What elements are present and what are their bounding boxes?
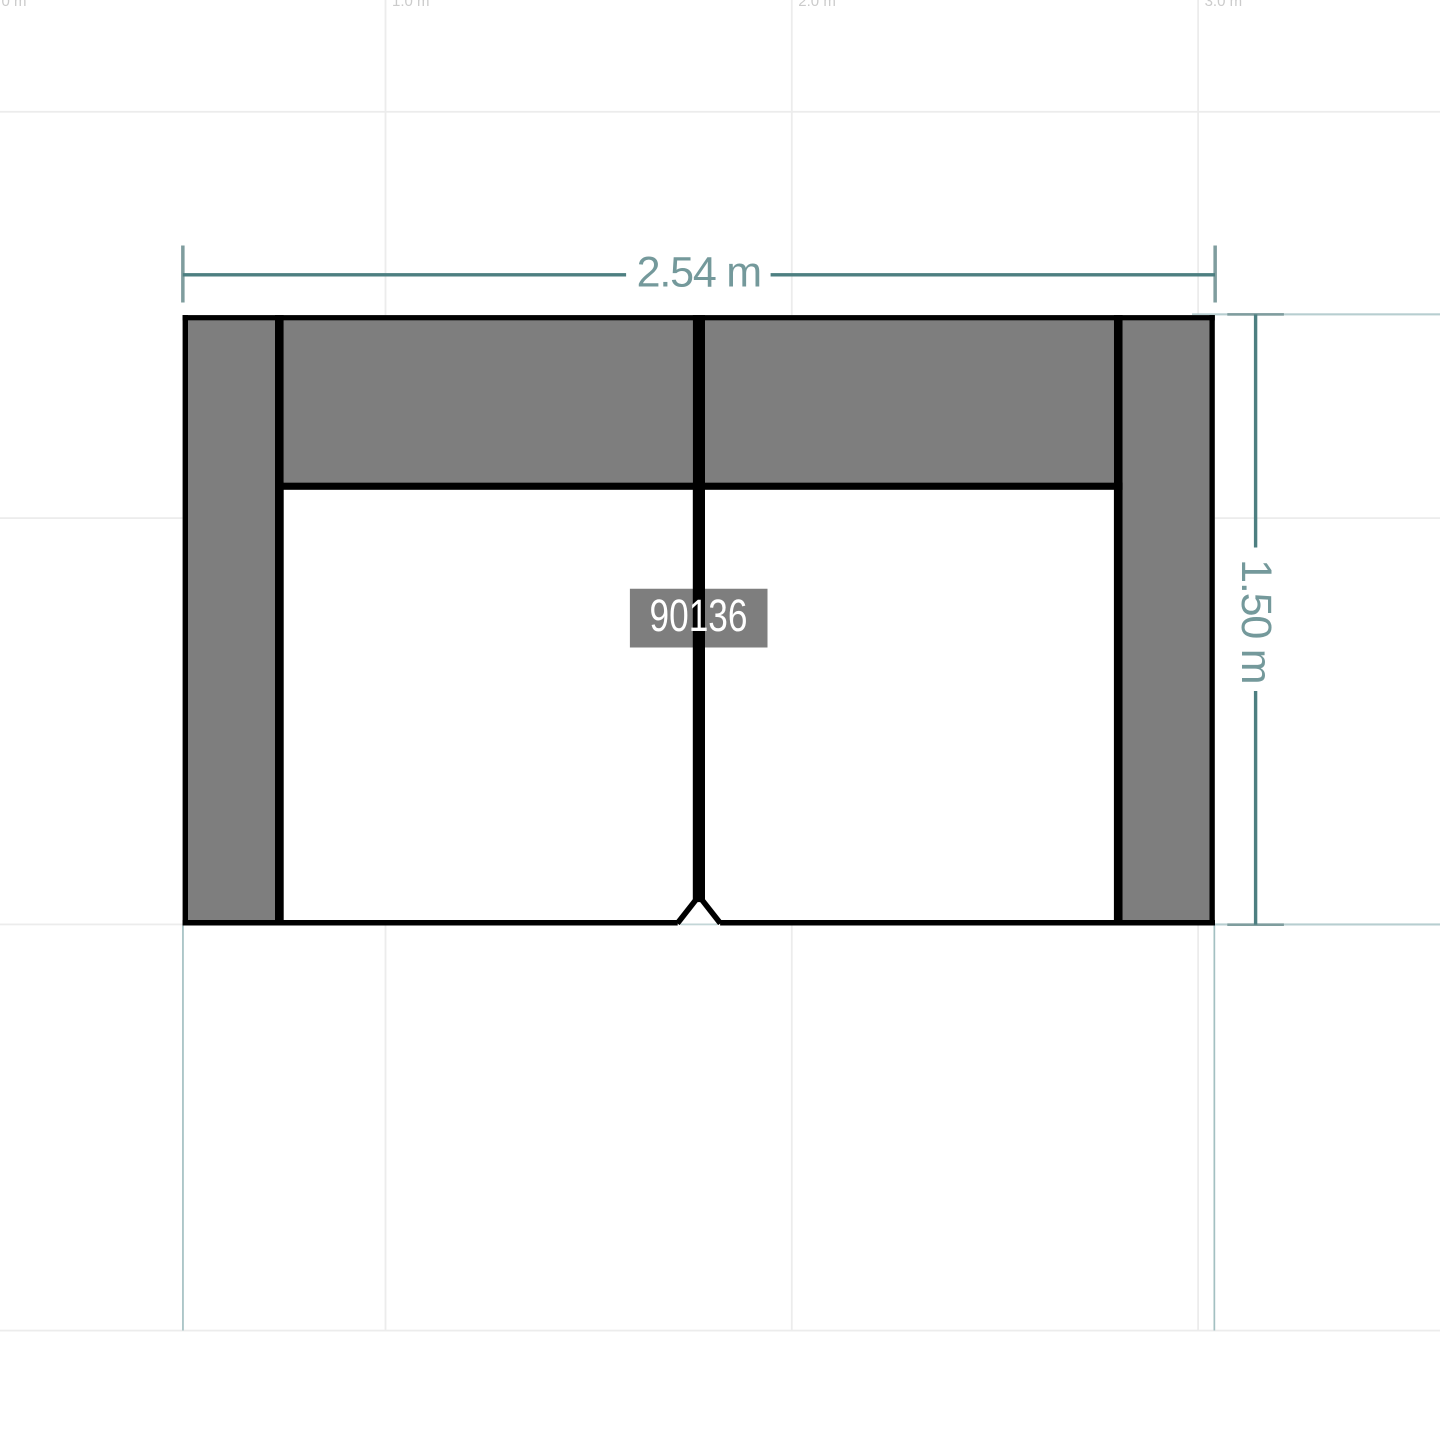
svg-text:1.50 m: 1.50 m: [1232, 559, 1280, 683]
svg-text:1.0 m: 1.0 m: [392, 0, 430, 10]
svg-text:90136: 90136: [650, 590, 748, 641]
svg-text:2.0 m: 2.0 m: [798, 0, 836, 10]
svg-text:0 m: 0 m: [2, 0, 27, 10]
svg-text:2.54 m: 2.54 m: [637, 249, 761, 297]
svg-text:3.0 m: 3.0 m: [1205, 0, 1243, 10]
